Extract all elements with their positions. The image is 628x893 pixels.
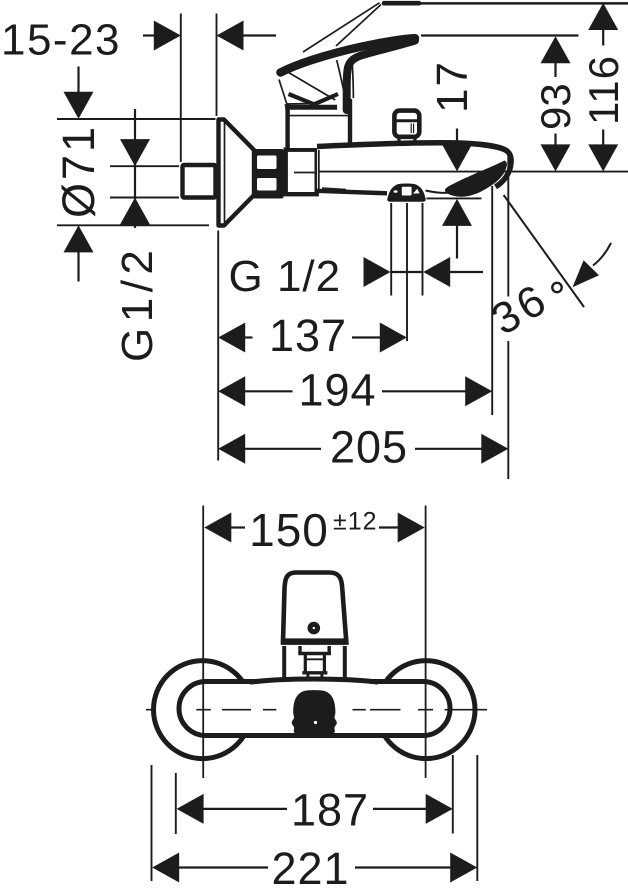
svg-text:221: 221 xyxy=(271,843,349,893)
svg-text:G 1/2: G 1/2 xyxy=(229,252,342,301)
svg-text:Ø71: Ø71 xyxy=(53,124,104,218)
svg-text:194: 194 xyxy=(298,364,376,415)
svg-text:205: 205 xyxy=(330,421,408,472)
svg-text:187: 187 xyxy=(291,785,369,836)
svg-text:15-23: 15-23 xyxy=(1,16,121,65)
svg-text:93: 93 xyxy=(532,83,579,130)
svg-text:116: 116 xyxy=(580,55,627,125)
svg-text:150: 150 xyxy=(249,504,329,556)
svg-text:±12: ±12 xyxy=(333,508,378,536)
svg-text:137: 137 xyxy=(269,310,347,361)
svg-text:17: 17 xyxy=(428,60,477,113)
svg-text:G1/2: G1/2 xyxy=(113,245,162,362)
